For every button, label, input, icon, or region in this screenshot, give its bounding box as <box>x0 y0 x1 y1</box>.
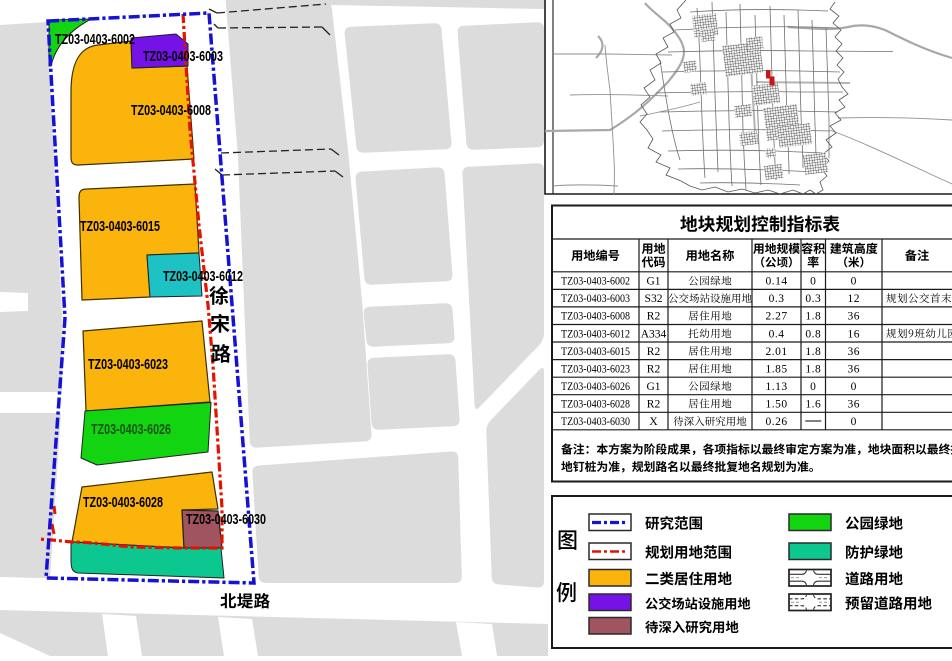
svg-text:1.6: 1.6 <box>805 399 821 411</box>
svg-text:TZ03-0403-6002: TZ03-0403-6002 <box>561 276 630 288</box>
svg-text:A334: A334 <box>641 328 667 340</box>
svg-text:R2: R2 <box>647 363 661 375</box>
svg-text:0: 0 <box>851 276 857 288</box>
svg-text:36: 36 <box>848 346 861 358</box>
svg-text:12: 12 <box>848 293 861 305</box>
svg-text:TZ03-0403-6028: TZ03-0403-6028 <box>83 494 163 511</box>
svg-text:X: X <box>649 416 658 428</box>
svg-text:36: 36 <box>848 399 861 411</box>
svg-text:TZ03-0403-6002: TZ03-0403-6002 <box>55 31 135 48</box>
svg-text:0.3: 0.3 <box>769 293 785 305</box>
svg-text:0.8: 0.8 <box>805 328 821 340</box>
svg-text:TZ03-0403-6015: TZ03-0403-6015 <box>80 218 160 235</box>
svg-text:TZ03-0403-6012: TZ03-0403-6012 <box>163 268 243 285</box>
svg-text:1.13: 1.13 <box>765 381 787 393</box>
svg-text:S32: S32 <box>645 293 663 305</box>
svg-text:TZ03-0403-6012: TZ03-0403-6012 <box>561 328 630 340</box>
svg-text:TZ03-0403-6026: TZ03-0403-6026 <box>91 421 171 438</box>
svg-text:TZ03-0403-6030: TZ03-0403-6030 <box>561 416 630 428</box>
svg-text:0.4: 0.4 <box>769 328 785 340</box>
svg-text:16: 16 <box>848 328 861 340</box>
svg-text:G1: G1 <box>646 381 660 393</box>
svg-text:1.8: 1.8 <box>805 346 821 358</box>
svg-text:36: 36 <box>848 311 861 323</box>
svg-text:TZ03-0403-6026: TZ03-0403-6026 <box>561 381 630 393</box>
svg-text:36: 36 <box>848 363 861 375</box>
svg-text:2.27: 2.27 <box>765 311 787 323</box>
svg-text:R2: R2 <box>647 346 661 358</box>
svg-text:TZ03-0403-6008: TZ03-0403-6008 <box>131 102 211 119</box>
svg-text:R2: R2 <box>647 311 661 323</box>
svg-text:0.14: 0.14 <box>765 276 787 288</box>
svg-text:0: 0 <box>810 276 816 288</box>
svg-text:0: 0 <box>851 416 857 428</box>
svg-text:TZ03-0403-6030: TZ03-0403-6030 <box>186 511 266 528</box>
svg-text:1.85: 1.85 <box>765 363 787 375</box>
svg-text:0.3: 0.3 <box>805 293 821 305</box>
svg-text:TZ03-0403-6003: TZ03-0403-6003 <box>143 48 223 65</box>
svg-text:G1: G1 <box>646 276 660 288</box>
svg-text:1.50: 1.50 <box>765 399 787 411</box>
svg-text:TZ03-0403-6008: TZ03-0403-6008 <box>561 311 630 323</box>
svg-text:TZ03-0403-6023: TZ03-0403-6023 <box>561 363 630 375</box>
svg-text:TZ03-0403-6028: TZ03-0403-6028 <box>561 399 630 411</box>
svg-text:1.8: 1.8 <box>805 311 821 323</box>
svg-text:TZ03-0403-6023: TZ03-0403-6023 <box>88 356 168 373</box>
svg-text:TZ03-0403-6003: TZ03-0403-6003 <box>561 293 630 305</box>
svg-text:1.8: 1.8 <box>805 363 821 375</box>
svg-text:R2: R2 <box>647 399 661 411</box>
svg-text:2.01: 2.01 <box>765 346 787 358</box>
svg-text:TZ03-0403-6015: TZ03-0403-6015 <box>561 346 630 358</box>
svg-text:0: 0 <box>810 381 816 393</box>
svg-text:0: 0 <box>851 381 857 393</box>
svg-text:0.26: 0.26 <box>765 416 787 428</box>
